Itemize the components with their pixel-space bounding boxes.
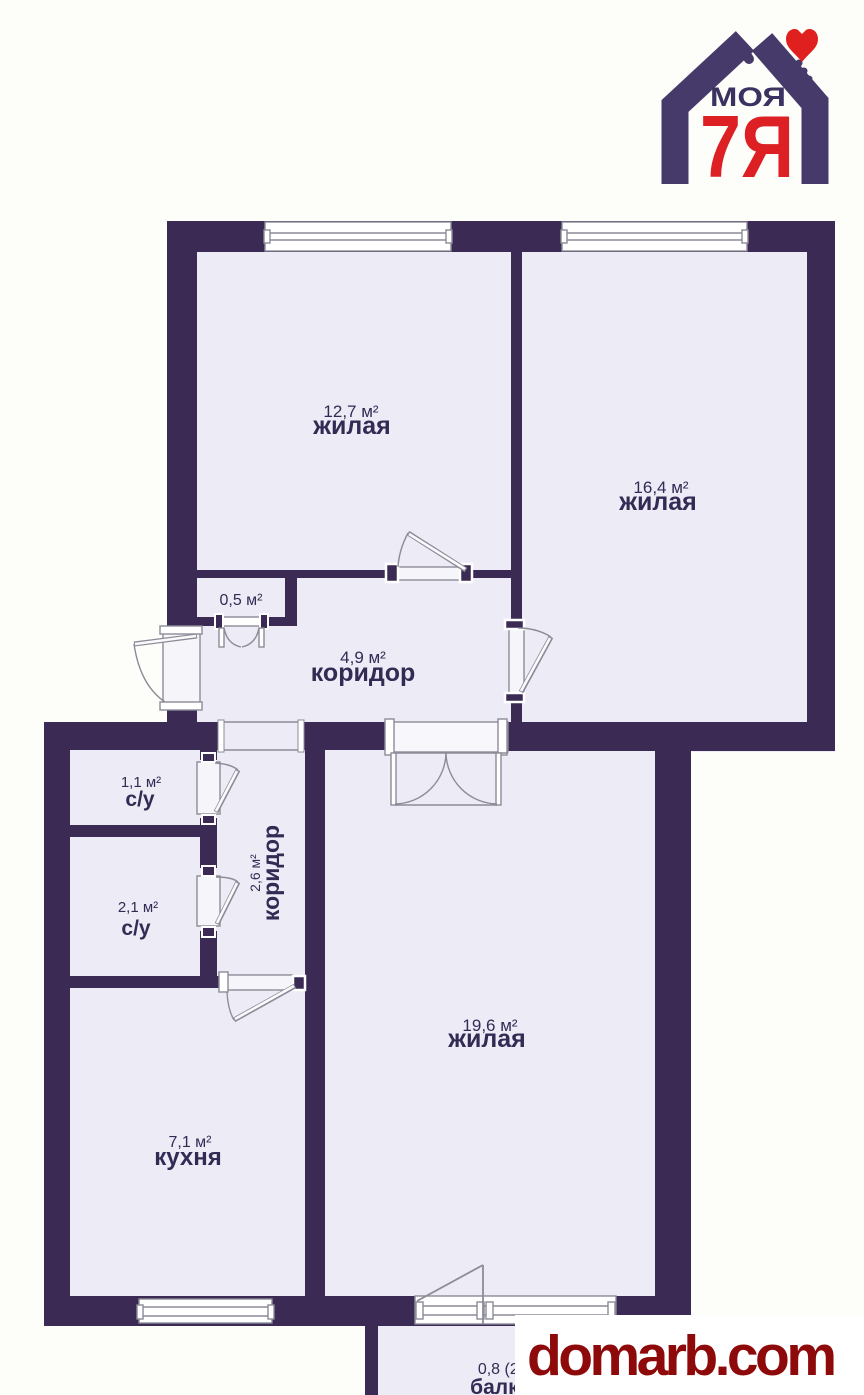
- svg-text:жилая: жилая: [447, 1025, 525, 1053]
- svg-text:коридор: коридор: [311, 659, 416, 687]
- svg-text:жилая: жилая: [618, 488, 696, 516]
- svg-text:с/у: с/у: [125, 788, 155, 811]
- svg-text:7Я: 7Я: [700, 97, 794, 196]
- svg-text:2,1 м²: 2,1 м²: [118, 899, 158, 916]
- svg-text:кухня: кухня: [154, 1144, 222, 1171]
- svg-text:0,5 м²: 0,5 м²: [219, 592, 263, 609]
- svg-text:с/у: с/у: [121, 917, 151, 940]
- svg-text:domarb.com: domarb.com: [527, 1324, 837, 1388]
- svg-text:жилая: жилая: [312, 412, 390, 440]
- svg-text:коридор: коридор: [258, 825, 284, 921]
